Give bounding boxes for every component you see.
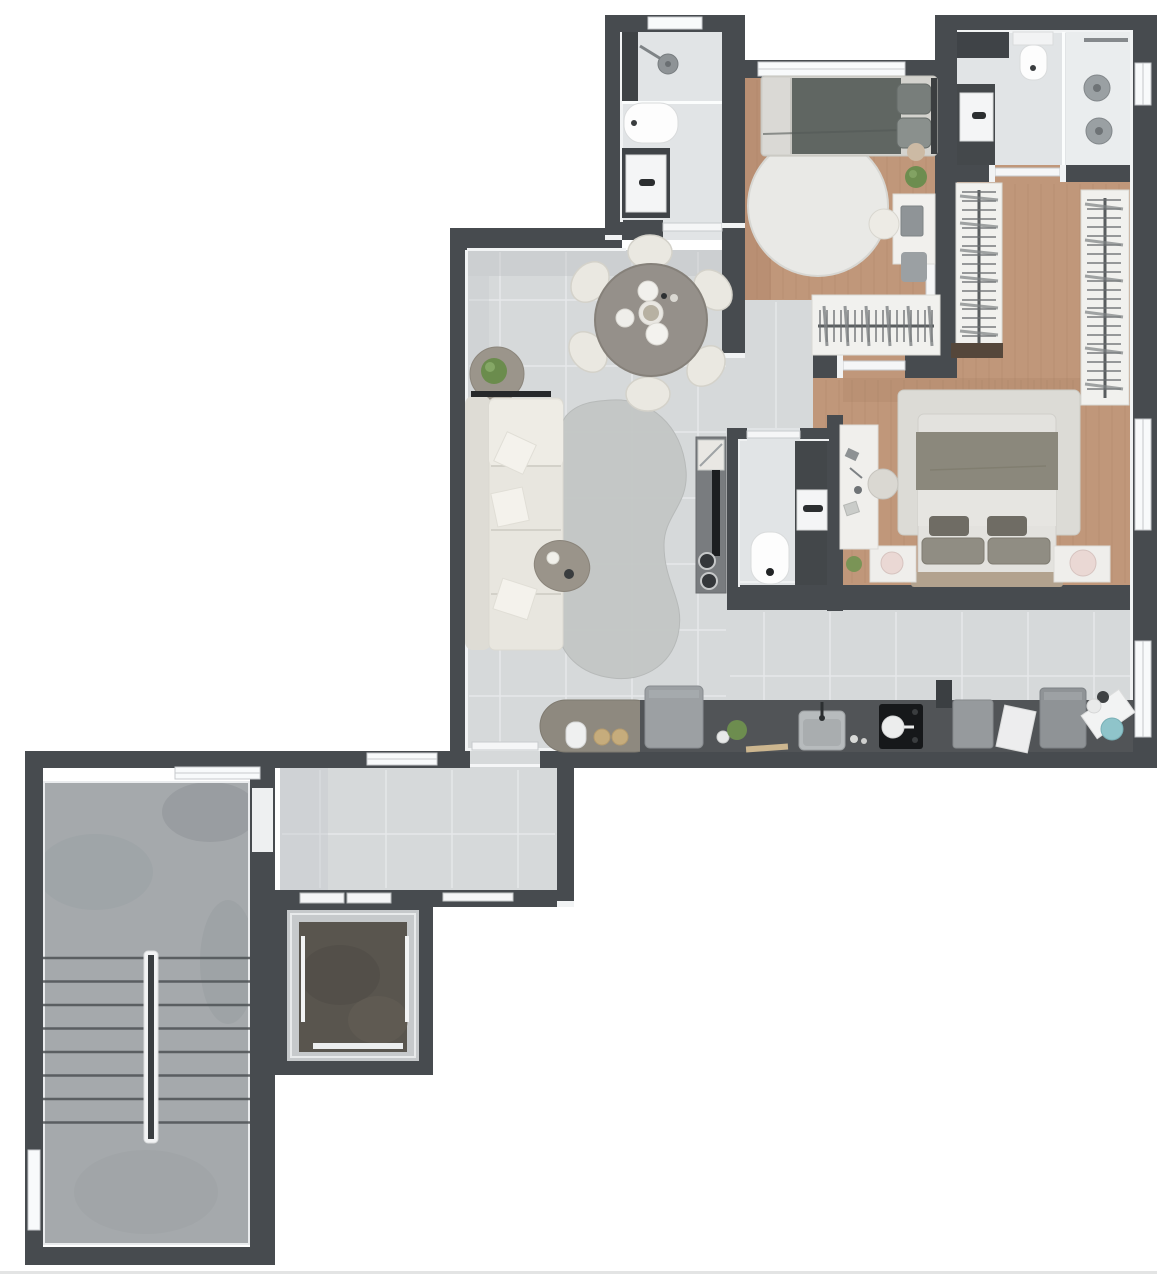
bathroom2-faucet [972,112,986,119]
dining-chair-4 [626,377,670,411]
wall-cap-2 [722,223,745,228]
kitchen-faucet-base [819,715,825,721]
tv-speaker-2 [701,573,717,589]
liner-stair-top [43,781,250,783]
kitchen-cooktop-knob-2 [912,737,918,743]
bathroom2-toilet-tank [1013,32,1053,45]
door-leaf-bathroom1 [663,223,722,231]
kitchen-dishwasher [953,700,993,748]
kitchen-towel-roll [566,722,586,748]
wall-elevator-bottom [273,1061,433,1075]
sofa-console-shelf [471,391,551,397]
master-desk-chair [868,469,898,499]
kitchen-cup-teal [1101,718,1123,740]
master-lamp-right [1070,550,1096,576]
elevator-handrail-right [405,936,409,1022]
liner-stair-left [43,783,45,1245]
bedroom2-plant [905,166,927,188]
kitchen-tray-item-white [1087,699,1101,713]
wall-stairwell-bottom [25,1247,275,1265]
bathroom2-toilet-flush [1030,65,1036,71]
kitchen-pot [882,716,904,738]
liner-living-top [467,248,626,251]
master-lamp-left [881,552,903,574]
dining-plate-3 [616,309,634,327]
concrete-smudge-1 [162,782,258,842]
stair-handrail-core [148,955,154,1139]
concrete-smudge-2 [37,834,153,910]
bedroom2-laptop [901,206,923,236]
bathroom2-feature-wall [957,32,1009,58]
ensuite-faucet [803,505,823,512]
floor-corridor-entrance [728,357,743,430]
wall-cap-1 [605,235,622,240]
master-pillow-2 [988,538,1050,564]
master-pillow-dark-2 [987,516,1027,536]
wall-living-left [450,228,467,768]
wall-elevator-right [419,896,433,1075]
elevator-cab-texture-2 [348,996,408,1044]
elevator-door-2 [347,893,391,903]
bedroom2-headboard [931,78,937,154]
kitchen-wall-stub [936,680,952,708]
ensuite-toilet [751,532,789,584]
wall-hallway-right [557,751,574,907]
wall-bottom-main [450,751,1145,768]
bathroom2-shower-rose-2-center [1095,127,1103,135]
dining-decor-small [670,294,678,302]
elevator-handrail-left [301,936,305,1022]
kitchen-cooktop-knob-1 [912,709,918,715]
side-table-decor [564,569,574,579]
elevator-threshold [313,1043,403,1049]
window-bathroom1-top [648,17,702,29]
bedroom2-desk-chair [869,209,899,239]
bathroom1-feature-wall [622,32,638,101]
master-pillow-1 [922,538,984,564]
elevator-door-1 [300,893,344,903]
kitchen-sink-basin [803,719,841,746]
wall-ensuite-bottom [727,585,840,610]
master-headboard [911,572,1063,587]
living-plant [481,358,507,384]
dining-plate-2-food [643,305,659,321]
kitchen-jar-2 [612,729,628,745]
master-pillow-dark-1 [929,516,969,536]
kitchen-appliance-highlight [1044,692,1082,700]
wall-cap-6 [1060,165,1066,182]
bathroom1-faucet [639,179,655,186]
sofa-back [465,396,491,650]
kitchen-sink-dish-1 [850,735,858,743]
window-stairwell-left [28,1150,40,1230]
dining-bowl [646,323,668,345]
sofa-pillow-2 [491,487,529,527]
kitchen-fridge-highlight [649,690,699,698]
floor-plan-svg [0,0,1157,1280]
entry-threshold [470,764,540,767]
tv-screen [712,470,720,556]
bedroom2-pillow-1 [897,84,931,114]
living-plant-highlight [485,362,495,372]
door-leaf-hallway [443,893,513,901]
liner-stair-bottom [43,1243,250,1245]
master-desk-dot [854,486,862,494]
wall-living-top [450,228,622,250]
tv-speaker-1 [699,553,715,569]
dining-plate-1 [638,281,658,301]
closet-floor-mat [951,343,1003,358]
master-plant [846,556,862,572]
floor-plan-page [0,0,1157,1280]
bathroom2-toilet [1020,45,1047,80]
kitchen-plant [727,720,747,740]
shade-hallway-left [280,768,328,890]
kitchen-sink-dish-2 [861,738,867,744]
bathroom2-shower-glass [1062,32,1065,165]
kitchen-roll [717,731,729,743]
door-leaf-master [843,361,905,370]
liner-ensuite-left [738,441,740,587]
liner-stair-right [248,783,250,1245]
elevator-cab-texture-1 [300,945,380,1005]
bathroom1-toilet-flush [631,120,637,126]
wall-elevator-left [273,896,287,1075]
bedroom2-plant-highlight [909,170,917,178]
page-bottom-divider [0,1271,1157,1274]
dining-decor-dark [661,293,667,299]
door-leaf-entry [472,742,538,750]
wall-bathroom1-left [605,15,622,240]
liner-right-wall [1130,32,1133,748]
concrete-smudge-3 [74,1150,218,1234]
wall-master-bottom [830,585,1145,610]
wall-cap-4 [837,355,843,378]
master-bed-blanket [916,432,1058,490]
wall-bathroom2-top [943,15,1145,32]
door-leaf-ensuite [747,431,800,438]
bedroom2-rug [748,136,888,276]
side-table-candle [547,552,559,564]
bathroom2-shower-rose-1-center [1093,84,1101,92]
kitchen-jar-1 [594,729,610,745]
wall-bathroom1-bedroom2 [722,15,745,228]
wall-cap-7 [557,901,574,907]
bedroom2-bed-sheet [763,78,791,154]
door-leaf-bathroom2 [995,168,1060,176]
doorway-stairwell [252,788,273,852]
floor-suite-corridor [743,300,813,430]
bathroom1-shower-head-center [665,61,671,67]
bedroom2-decor-basket [907,143,925,161]
ensuite-toilet-flush [766,568,774,576]
wall-cap-5 [989,165,995,182]
bedroom2-stool [901,252,927,282]
